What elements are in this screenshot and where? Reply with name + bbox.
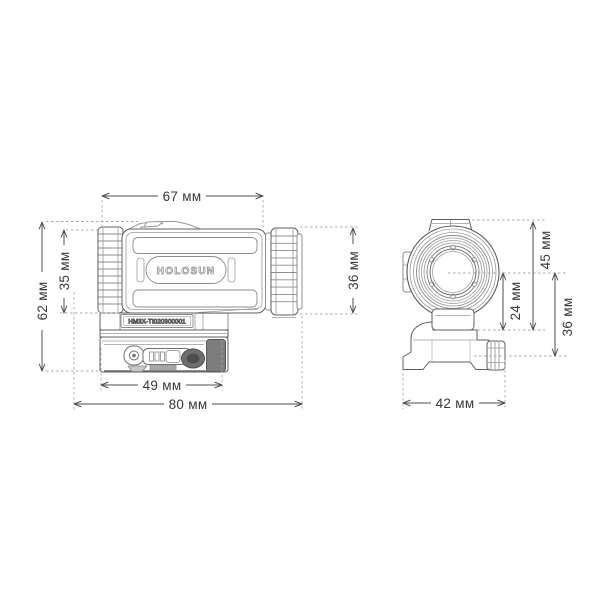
dim-side-total-length: 80 мм [74, 397, 302, 412]
dim-label-mount-length: 49 мм [143, 378, 182, 393]
dim-label-total-width: 42 мм [436, 396, 475, 411]
dim-side-total-height: 62 мм [32, 222, 50, 371]
magnifier-front-view [403, 220, 505, 371]
dim-front-axis-to-rail: 24 мм [503, 273, 523, 330]
dim-front-top-to-rail: 45 мм [533, 222, 553, 330]
dim-label-body-length: 67 мм [163, 189, 202, 204]
diagram-canvas: HOLOSUN [0, 0, 600, 600]
clamp-block [207, 340, 226, 372]
dim-label-axis-to-base: 36 мм [560, 298, 575, 337]
dim-side-body-length: 67 мм [102, 189, 263, 204]
dim-side-body-height: 35 мм [54, 230, 72, 313]
serial-number-text: HM3X-TI020300001 [128, 319, 186, 326]
dim-front-axis-to-base: 36 мм [555, 273, 575, 356]
dim-front-total-width: 42 мм [403, 396, 505, 411]
clamp-knob [487, 341, 505, 370]
serial-plate: HM3X-TI020300001 [121, 315, 193, 328]
dim-label-top-to-rail: 45 мм [538, 231, 553, 270]
main-body: HOLOSUN [122, 229, 266, 313]
front-lens-assembly [407, 226, 499, 318]
dim-label-total-length: 80 мм [169, 397, 208, 412]
dim-side-mount-length: 49 мм [101, 378, 222, 393]
technical-drawing-page: HOLOSUN [0, 0, 600, 600]
dim-label-body-height: 35 мм [57, 252, 72, 291]
qd-clamp-base [100, 337, 228, 372]
objective-ring [266, 228, 303, 318]
dim-side-objective-height: 36 мм [343, 228, 361, 313]
dim-label-axis-to-rail: 24 мм [508, 282, 523, 321]
holosun-logo: HOLOSUN [157, 266, 215, 277]
magnifier-side-view: HOLOSUN [98, 222, 302, 373]
dim-label-total-height: 62 мм [35, 282, 50, 321]
dim-label-objective-height: 36 мм [346, 251, 361, 290]
mount-bracket [403, 309, 505, 370]
eyepiece-ring [98, 227, 123, 313]
